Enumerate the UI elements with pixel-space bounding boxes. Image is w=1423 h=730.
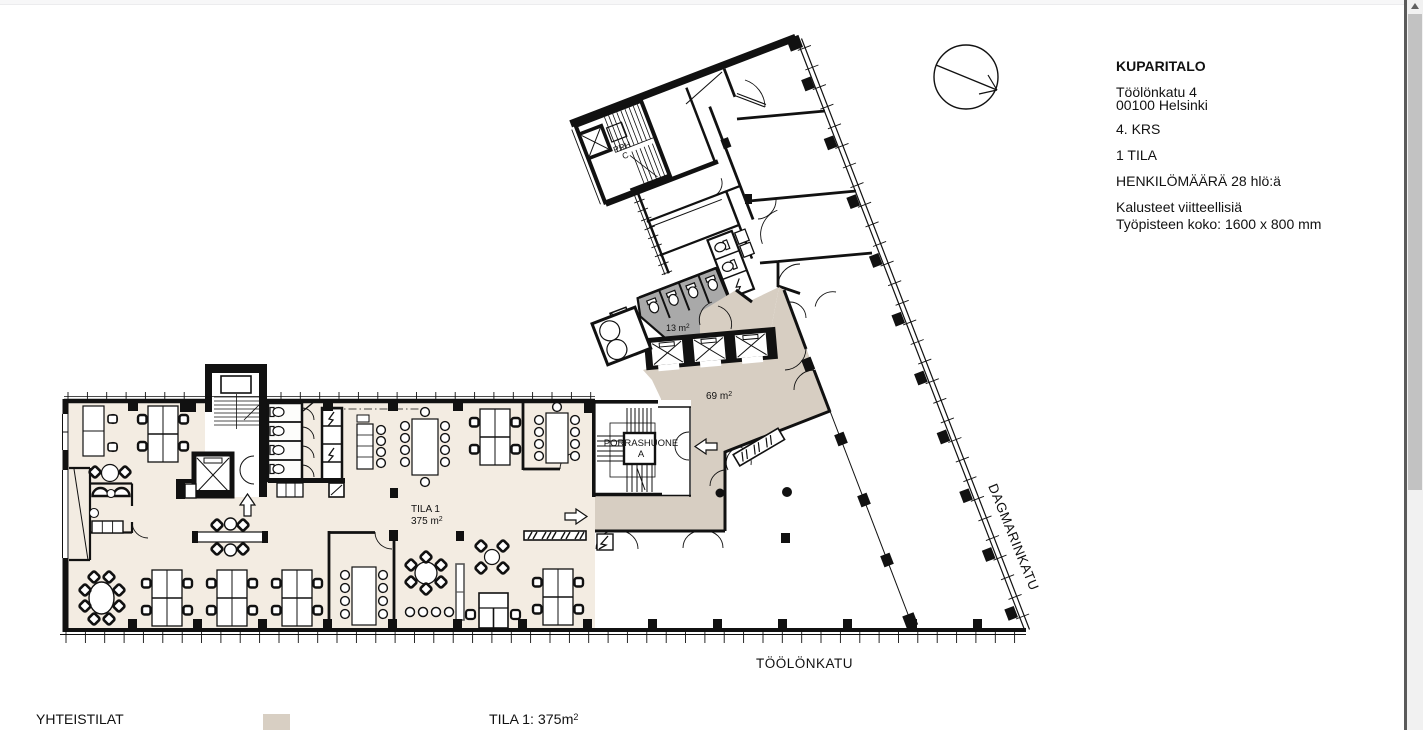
svg-text:TÖÖLÖNKATU: TÖÖLÖNKATU	[756, 656, 853, 671]
svg-text:YHTEISTILAT: YHTEISTILAT	[36, 711, 124, 727]
svg-text:375 m2: 375 m2	[411, 516, 443, 527]
svg-text:Kalusteet viitteellisiä: Kalusteet viitteellisiä	[1116, 199, 1242, 215]
svg-text:PORRASHUONE: PORRASHUONE	[604, 438, 678, 449]
svg-text:4. KRS: 4. KRS	[1116, 121, 1160, 137]
svg-text:TILA 1: TILA 1	[411, 504, 440, 515]
svg-text:1 TILA: 1 TILA	[1116, 147, 1158, 163]
svg-text:TILA 1: 375m2: TILA 1: 375m2	[489, 712, 578, 728]
svg-text:KUPARITALO: KUPARITALO	[1116, 58, 1206, 74]
svg-text:HENKILÖMÄÄRÄ 28 hlö:ä: HENKILÖMÄÄRÄ 28 hlö:ä	[1116, 172, 1281, 189]
svg-text:00100 Helsinki: 00100 Helsinki	[1116, 97, 1208, 113]
svg-text:Työpisteen koko: 1600 x 800 mm: Työpisteen koko: 1600 x 800 mm	[1116, 216, 1321, 232]
svg-text:A: A	[638, 449, 645, 460]
